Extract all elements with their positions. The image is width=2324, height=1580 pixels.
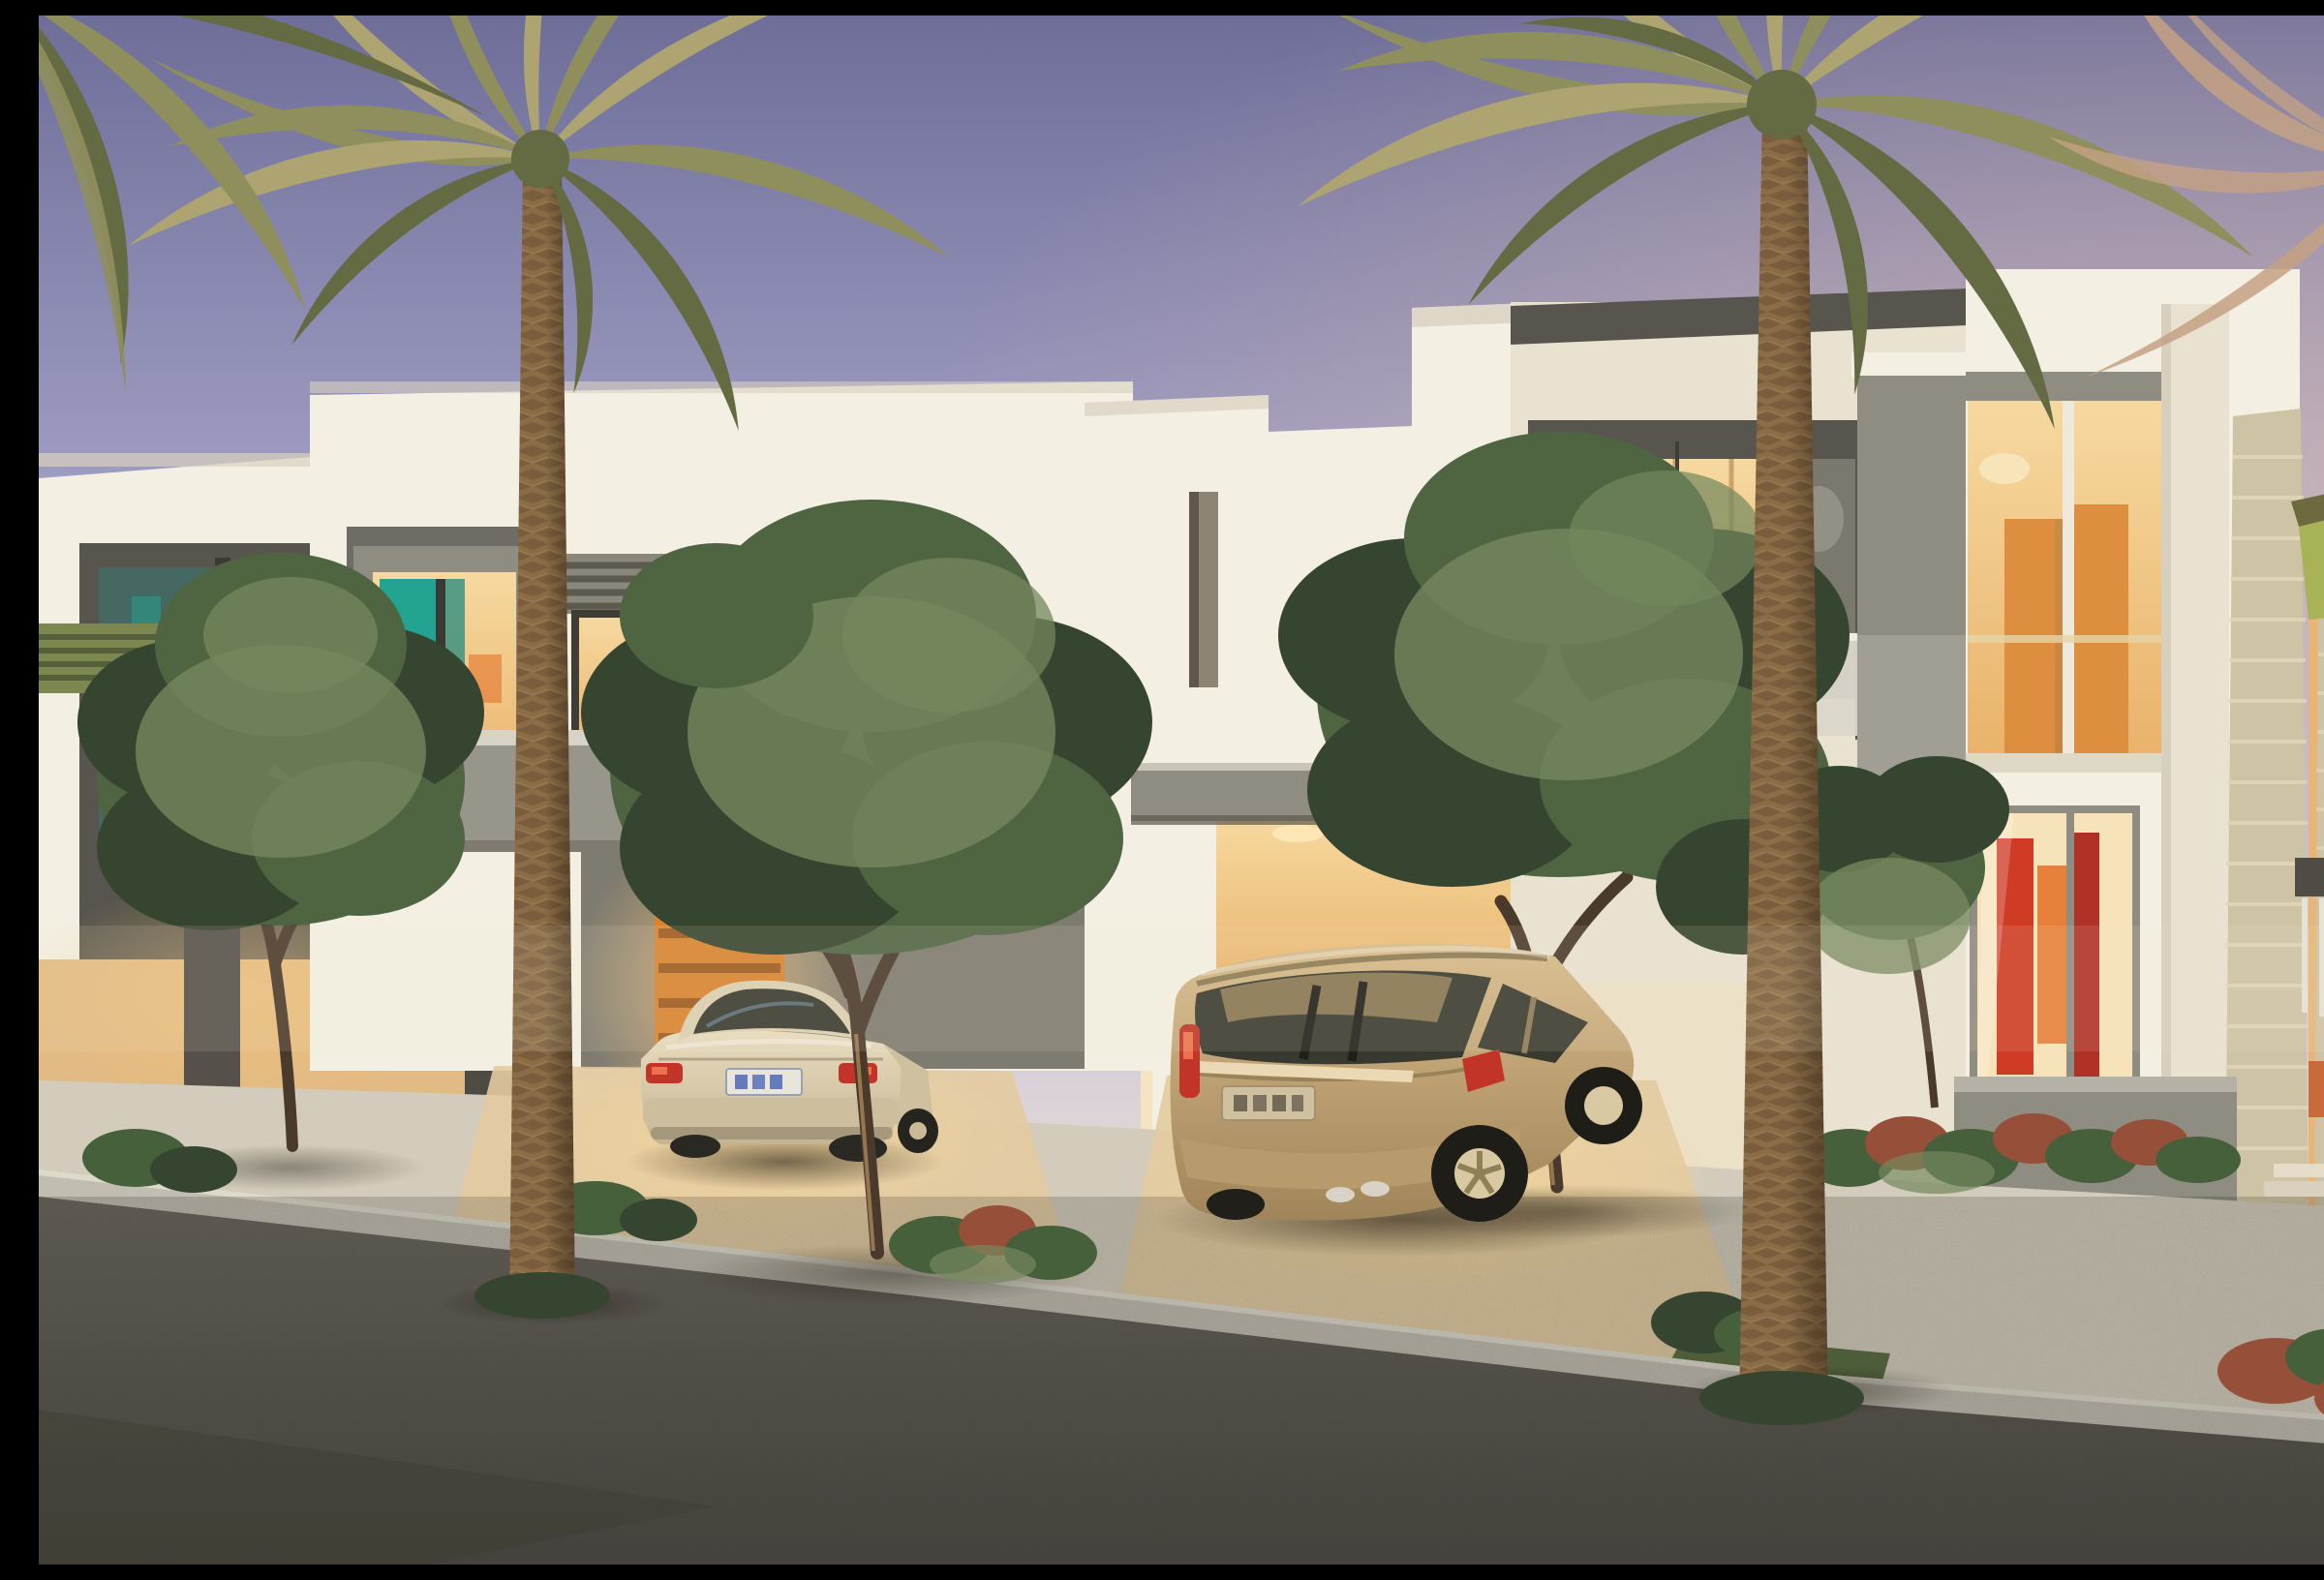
- van-rear-wheel: [1431, 1125, 1528, 1222]
- van-license-plate: [1222, 1086, 1315, 1120]
- upper-warm-window: [1966, 401, 2165, 773]
- orange-wardrobe-panel: [2074, 504, 2128, 757]
- white-fin-wall: [2161, 304, 2229, 1210]
- stone-pillar: [2225, 409, 2309, 1210]
- horizon-haze: [39, 926, 2324, 1051]
- red-orange-glow: [2309, 1061, 2324, 1117]
- sedan-license-plate: [726, 1069, 802, 1095]
- townhouse-dusk-rendering: [39, 15, 2324, 1565]
- slot-window: [1189, 492, 1218, 687]
- van-exhaust: [1326, 1187, 1355, 1202]
- van-exhaust: [1361, 1181, 1390, 1197]
- townhouse-right: [1954, 269, 2309, 1222]
- window-header-band: [1966, 372, 2165, 401]
- van-front-wheel: [1565, 1067, 1642, 1144]
